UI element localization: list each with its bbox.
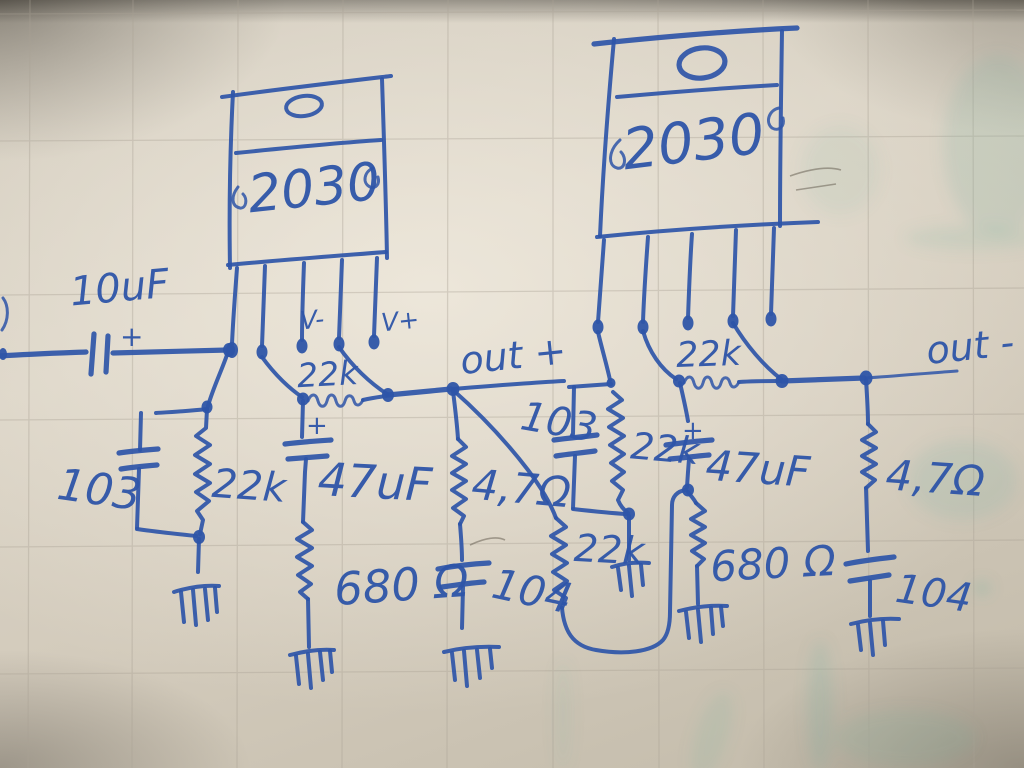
right-input-cap-label: 103 [517,393,600,452]
out-plus-label: out + [458,328,568,383]
out-minus-label: out - [924,320,1016,373]
right-fb-cap-label: 47uF [704,441,812,497]
right-fb-cap-polarity-label: + [682,416,704,446]
left-feedback-res-label: 22k [296,353,361,395]
left-zobel-res-label: 4,7Ω [470,460,573,517]
schematic-drawing: 2030 V- V+ 2030 [0,0,1024,768]
ground-symbol-right-zobel [851,619,899,655]
left-input-shunt-network [119,352,228,572]
ground-symbol-left-zobel [444,647,499,686]
input-cap-value-label: 10uF [68,261,172,316]
left-input-res-label: 22k [210,461,289,512]
ic-right-pins [593,228,777,335]
ground-symbol-right-feedback [679,606,727,642]
out-minus-rail [782,371,957,386]
right-zobel-cap-label: 104 [893,566,975,622]
ic-left-part-label: 2030 [245,152,383,226]
vminus-label: V- [299,304,326,335]
mounting-hole-icon [677,45,726,80]
input-cap-polarity-label: + [120,320,143,353]
ground-symbol-left-feedback [290,650,334,688]
left-input-cap-label: 103 [54,459,144,521]
ground-symbol-left-input [174,586,219,625]
right-zobel-res-label: 4,7Ω [884,450,986,506]
whiteboard-photo: 2030 V- V+ 2030 [0,0,1024,768]
left-fb-cap-polarity-label: + [306,411,328,441]
left-fb-cap-label: 47uF [317,452,434,512]
ic-right-part-label: 2030 [619,101,768,183]
mounting-hole-icon [285,94,323,119]
right-fb-res-label: 680 Ω [709,536,837,592]
right-feedback-res-label: 22k [675,334,743,376]
vplus-label: V+ [380,305,421,338]
out-plus-rail [388,381,564,396]
